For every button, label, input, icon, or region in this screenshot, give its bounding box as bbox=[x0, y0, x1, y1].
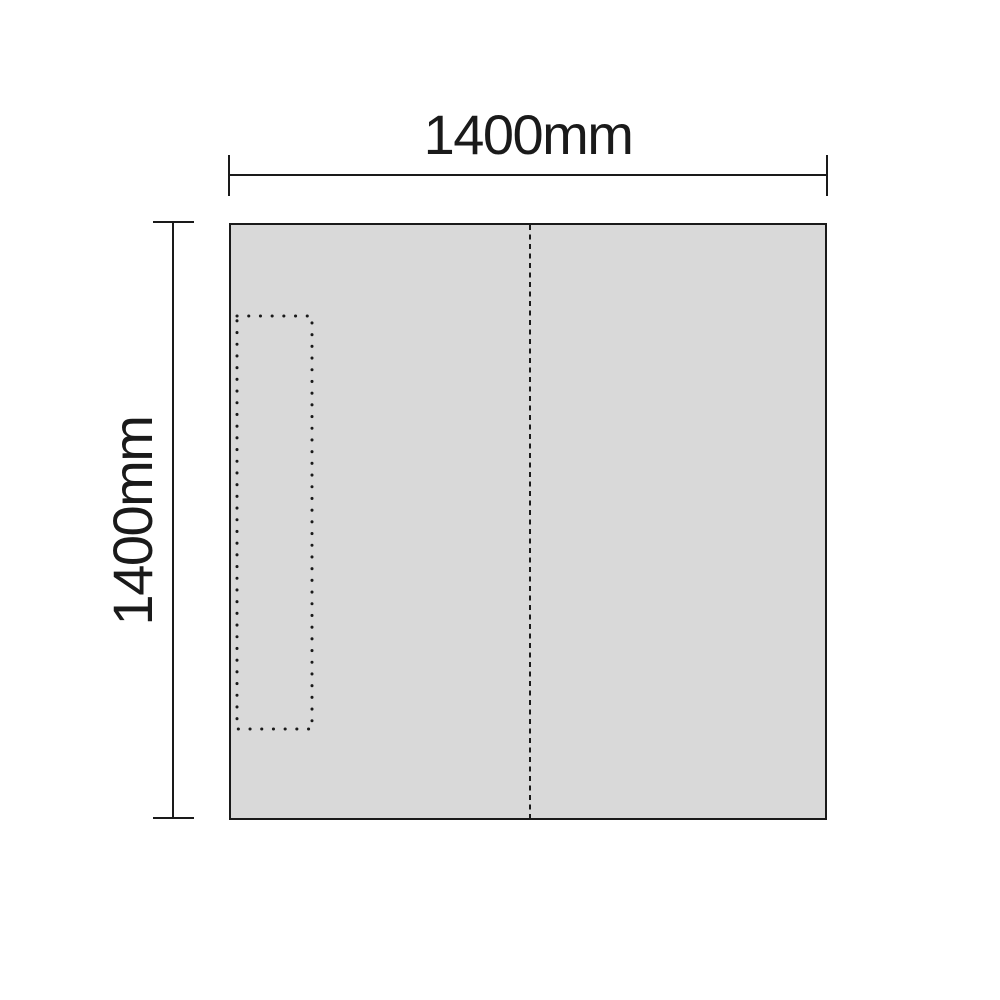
height-dimension-line bbox=[172, 222, 174, 819]
width-dimension-label: 1400mm bbox=[229, 107, 827, 163]
width-dimension-tick-right bbox=[826, 155, 828, 196]
width-dimension-line bbox=[229, 174, 827, 176]
panel bbox=[229, 223, 827, 820]
dimension-diagram: 1400mm 1400mm bbox=[0, 0, 1000, 1000]
height-dimension-label: 1400mm bbox=[105, 417, 161, 626]
height-dimension-tick-bottom bbox=[153, 817, 194, 819]
width-dimension-tick-left bbox=[228, 155, 230, 196]
dotted-inner-rectangle bbox=[237, 316, 312, 729]
height-dimension-tick-top bbox=[153, 221, 194, 223]
panel-markings bbox=[231, 225, 825, 818]
